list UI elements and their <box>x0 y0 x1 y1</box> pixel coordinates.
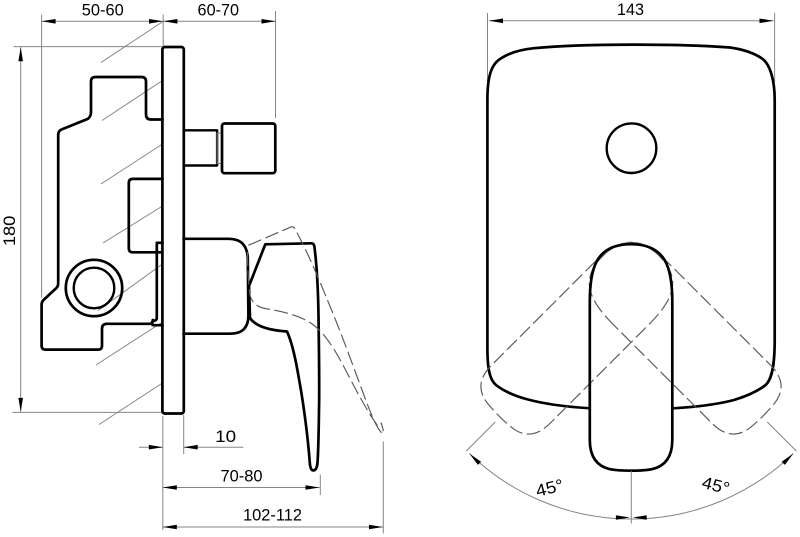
svg-text:70-80: 70-80 <box>221 466 263 485</box>
svg-text:143: 143 <box>617 0 644 19</box>
svg-text:102-112: 102-112 <box>243 506 302 525</box>
svg-text:10: 10 <box>215 427 236 446</box>
svg-text:60-70: 60-70 <box>198 0 240 19</box>
svg-text:180: 180 <box>0 216 19 247</box>
svg-text:50-60: 50-60 <box>82 0 124 19</box>
